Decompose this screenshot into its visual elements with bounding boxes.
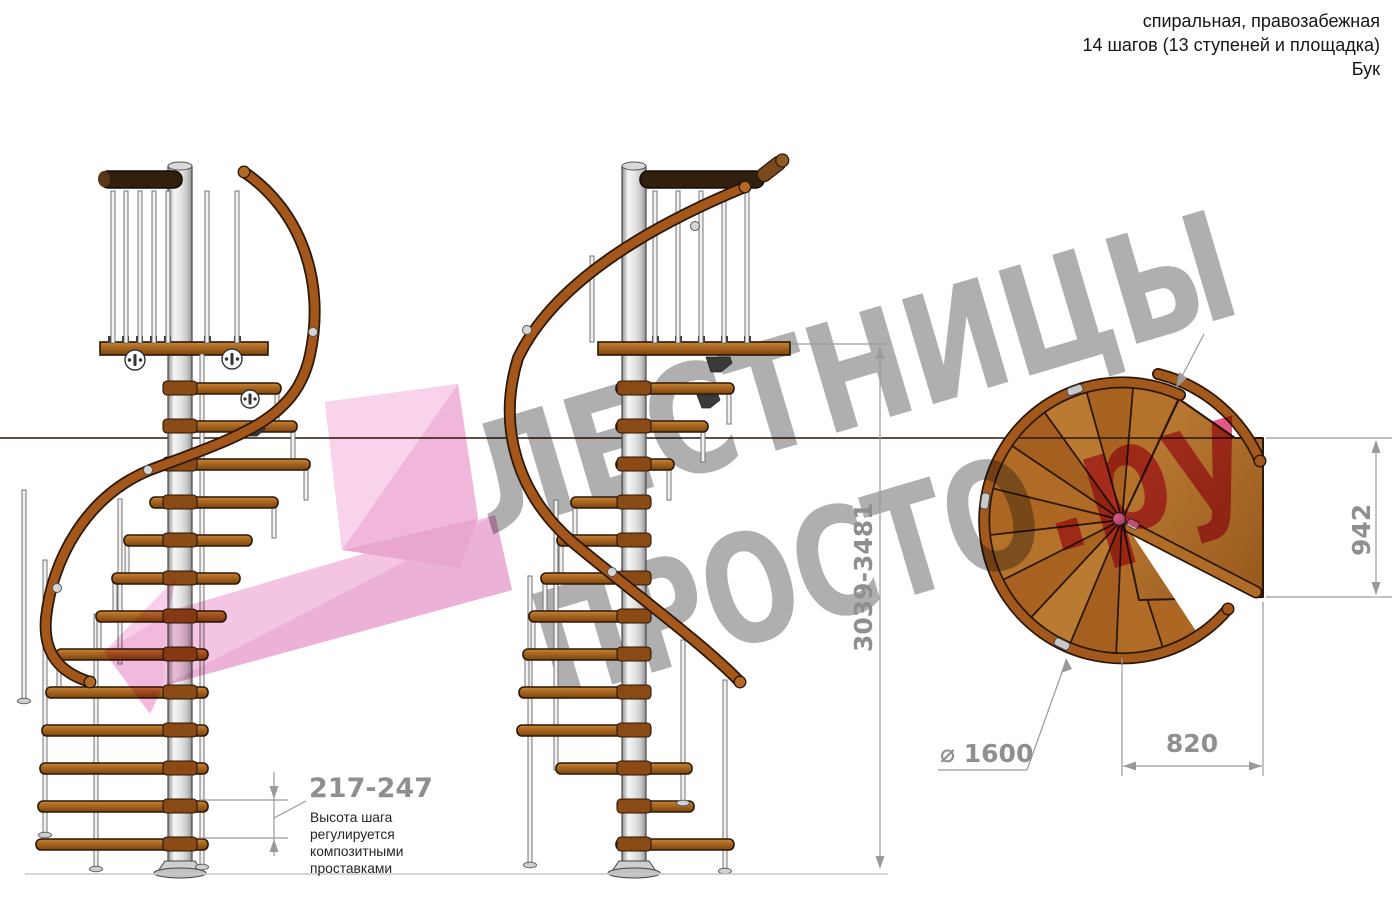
dim-step-height: 217-247 [309,773,433,804]
dim-landing-depth: 820 [1166,729,1218,758]
dim-landing-width: 942 [1347,504,1376,556]
treads-and-balusters [22,191,310,868]
side-view-1 [22,162,318,878]
stair-type: спиральная, правозабежная [1143,11,1380,31]
arrow-watermark [104,384,512,714]
steps-count: 14 шагов (13 ступеней и площадка) [1082,35,1380,55]
rail-end-piece [754,151,791,185]
svg-text:композитными: композитными [310,844,403,859]
title-block: спиральная, правозабежная 14 шагов (13 с… [1082,11,1380,79]
staircase-drawing: ЛЕСТНИЦЫ ПРОСТО .ру [0,0,1400,914]
top-guard-rail [100,171,182,188]
landing-board [598,342,790,355]
dim-total-height: 3039-3481 [849,502,878,652]
svg-text:Высота шага: Высота шага [310,810,393,825]
step-height-note: Высота шага регулируется композитными пр… [310,810,403,876]
drawing-sheet: ЛЕСТНИЦЫ ПРОСТО .ру [0,0,1400,914]
svg-text:регулируется: регулируется [310,827,395,842]
dim-diameter: ⌀ 1600 [940,739,1033,768]
svg-text:проставками: проставками [310,861,392,876]
landing-board [100,342,268,355]
material: Бук [1352,59,1380,79]
